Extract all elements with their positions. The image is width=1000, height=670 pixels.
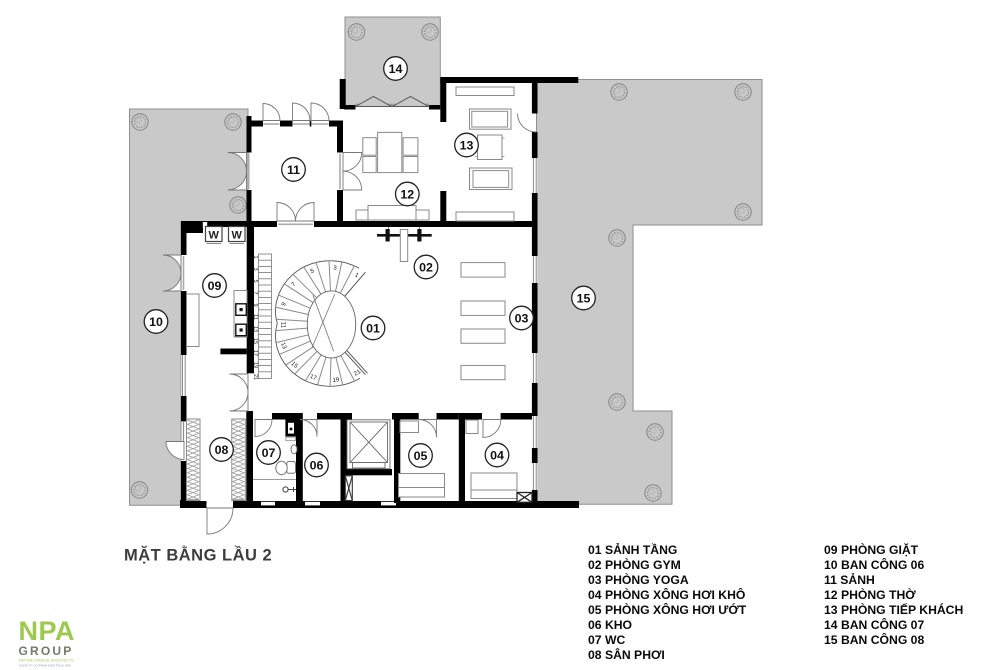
svg-text:12 PHÒNG THỜ: 12 PHÒNG THỜ	[824, 587, 916, 602]
svg-text:GROUP: GROUP	[19, 644, 74, 658]
svg-text:7: 7	[252, 291, 258, 294]
svg-text:14 BAN CÔNG 07: 14 BAN CÔNG 07	[824, 617, 924, 632]
svg-text:08: 08	[215, 443, 229, 457]
svg-text:MẶT BẰNG LẦU 2: MẶT BẰNG LẦU 2	[124, 546, 272, 565]
svg-text:21: 21	[252, 374, 258, 380]
svg-text:5: 5	[252, 279, 258, 282]
svg-text:11: 11	[280, 322, 286, 329]
svg-text:19: 19	[332, 377, 340, 384]
svg-text:15: 15	[577, 292, 591, 306]
svg-text:07 WC: 07 WC	[588, 633, 625, 647]
svg-text:03: 03	[515, 312, 529, 326]
svg-text:NPA: NPA	[19, 616, 76, 646]
svg-text:NATURE PASSFUL ARCHITECTS: NATURE PASSFUL ARCHITECTS	[19, 659, 74, 663]
svg-text:15 BAN CÔNG 08: 15 BAN CÔNG 08	[824, 632, 924, 647]
svg-text:04 PHÒNG XÔNG HƠI KHÔ: 04 PHÒNG XÔNG HƠI KHÔ	[588, 587, 745, 602]
svg-text:13: 13	[460, 139, 474, 153]
svg-text:3: 3	[252, 267, 258, 270]
svg-text:10 BAN CÔNG 06: 10 BAN CÔNG 06	[824, 557, 924, 572]
svg-text:14: 14	[389, 62, 403, 76]
svg-text:17: 17	[252, 350, 258, 356]
svg-text:15: 15	[252, 338, 258, 344]
svg-text:04: 04	[490, 449, 504, 463]
svg-text:9: 9	[252, 303, 258, 306]
svg-text:06: 06	[310, 459, 324, 473]
svg-text:13 PHÒNG TIẾP KHÁCH: 13 PHÒNG TIẾP KHÁCH	[824, 602, 963, 617]
svg-text:08 SÂN PHƠI: 08 SÂN PHƠI	[588, 647, 665, 662]
svg-text:02: 02	[419, 261, 433, 275]
svg-text:1: 1	[252, 255, 258, 258]
svg-text:13: 13	[252, 326, 258, 332]
svg-text:11 SẢNH: 11 SẢNH	[824, 572, 875, 587]
svg-text:01 SẢNH TẦNG: 01 SẢNH TẦNG	[588, 542, 677, 557]
svg-text:02 PHÒNG GYM: 02 PHÒNG GYM	[588, 557, 681, 572]
svg-text:07: 07	[262, 446, 276, 460]
svg-text:11: 11	[287, 163, 300, 177]
svg-text:09: 09	[208, 279, 222, 293]
svg-text:W: W	[209, 230, 220, 242]
svg-text:03 PHÒNG YOGA: 03 PHÒNG YOGA	[588, 572, 689, 587]
svg-text:W: W	[232, 230, 243, 242]
svg-text:CONG TY CO PHAN KIEN TRUC NPA: CONG TY CO PHAN KIEN TRUC NPA	[19, 664, 71, 668]
svg-text:05: 05	[414, 449, 428, 463]
svg-text:10: 10	[149, 315, 163, 329]
svg-text:12: 12	[400, 188, 414, 202]
svg-text:09 PHÒNG GIẶT: 09 PHÒNG GIẶT	[824, 542, 919, 557]
svg-text:01: 01	[366, 322, 380, 336]
svg-text:06 KHO: 06 KHO	[588, 618, 632, 632]
svg-text:19: 19	[252, 362, 258, 368]
svg-text:11: 11	[252, 314, 258, 320]
svg-text:05 PHÒNG XÔNG HƠI ƯỚT: 05 PHÒNG XÔNG HƠI ƯỚT	[588, 602, 747, 617]
